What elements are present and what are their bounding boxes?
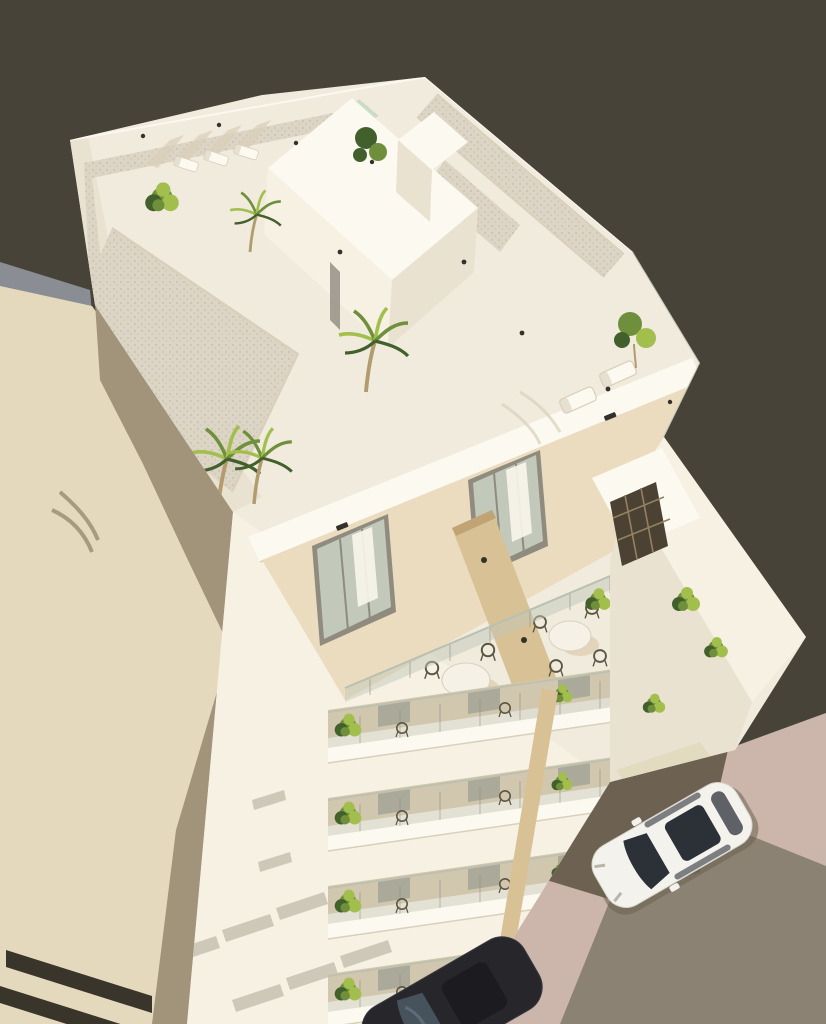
architectural-render-stage: Aerial 3D architectural rendering of a w… xyxy=(0,0,826,1024)
aerial-building-render: Aerial 3D architectural rendering of a w… xyxy=(0,0,826,1024)
